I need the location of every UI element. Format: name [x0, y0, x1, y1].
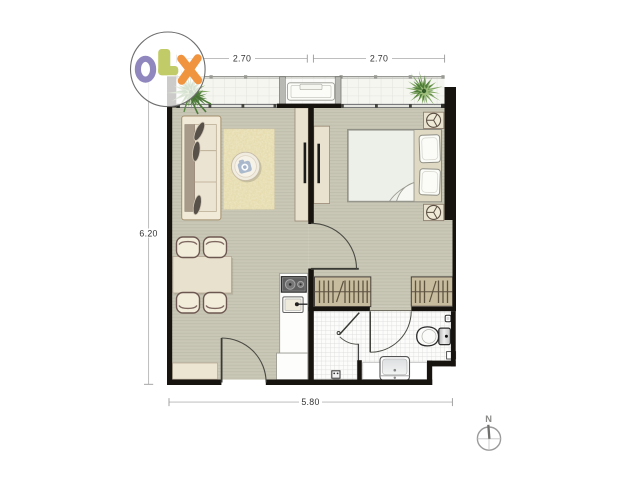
- svg-text:2.70: 2.70: [233, 54, 251, 64]
- svg-text:6.20: 6.20: [139, 228, 157, 238]
- svg-text:N: N: [485, 414, 492, 424]
- svg-text:5.80: 5.80: [301, 397, 319, 407]
- svg-text:2.70: 2.70: [370, 54, 388, 64]
